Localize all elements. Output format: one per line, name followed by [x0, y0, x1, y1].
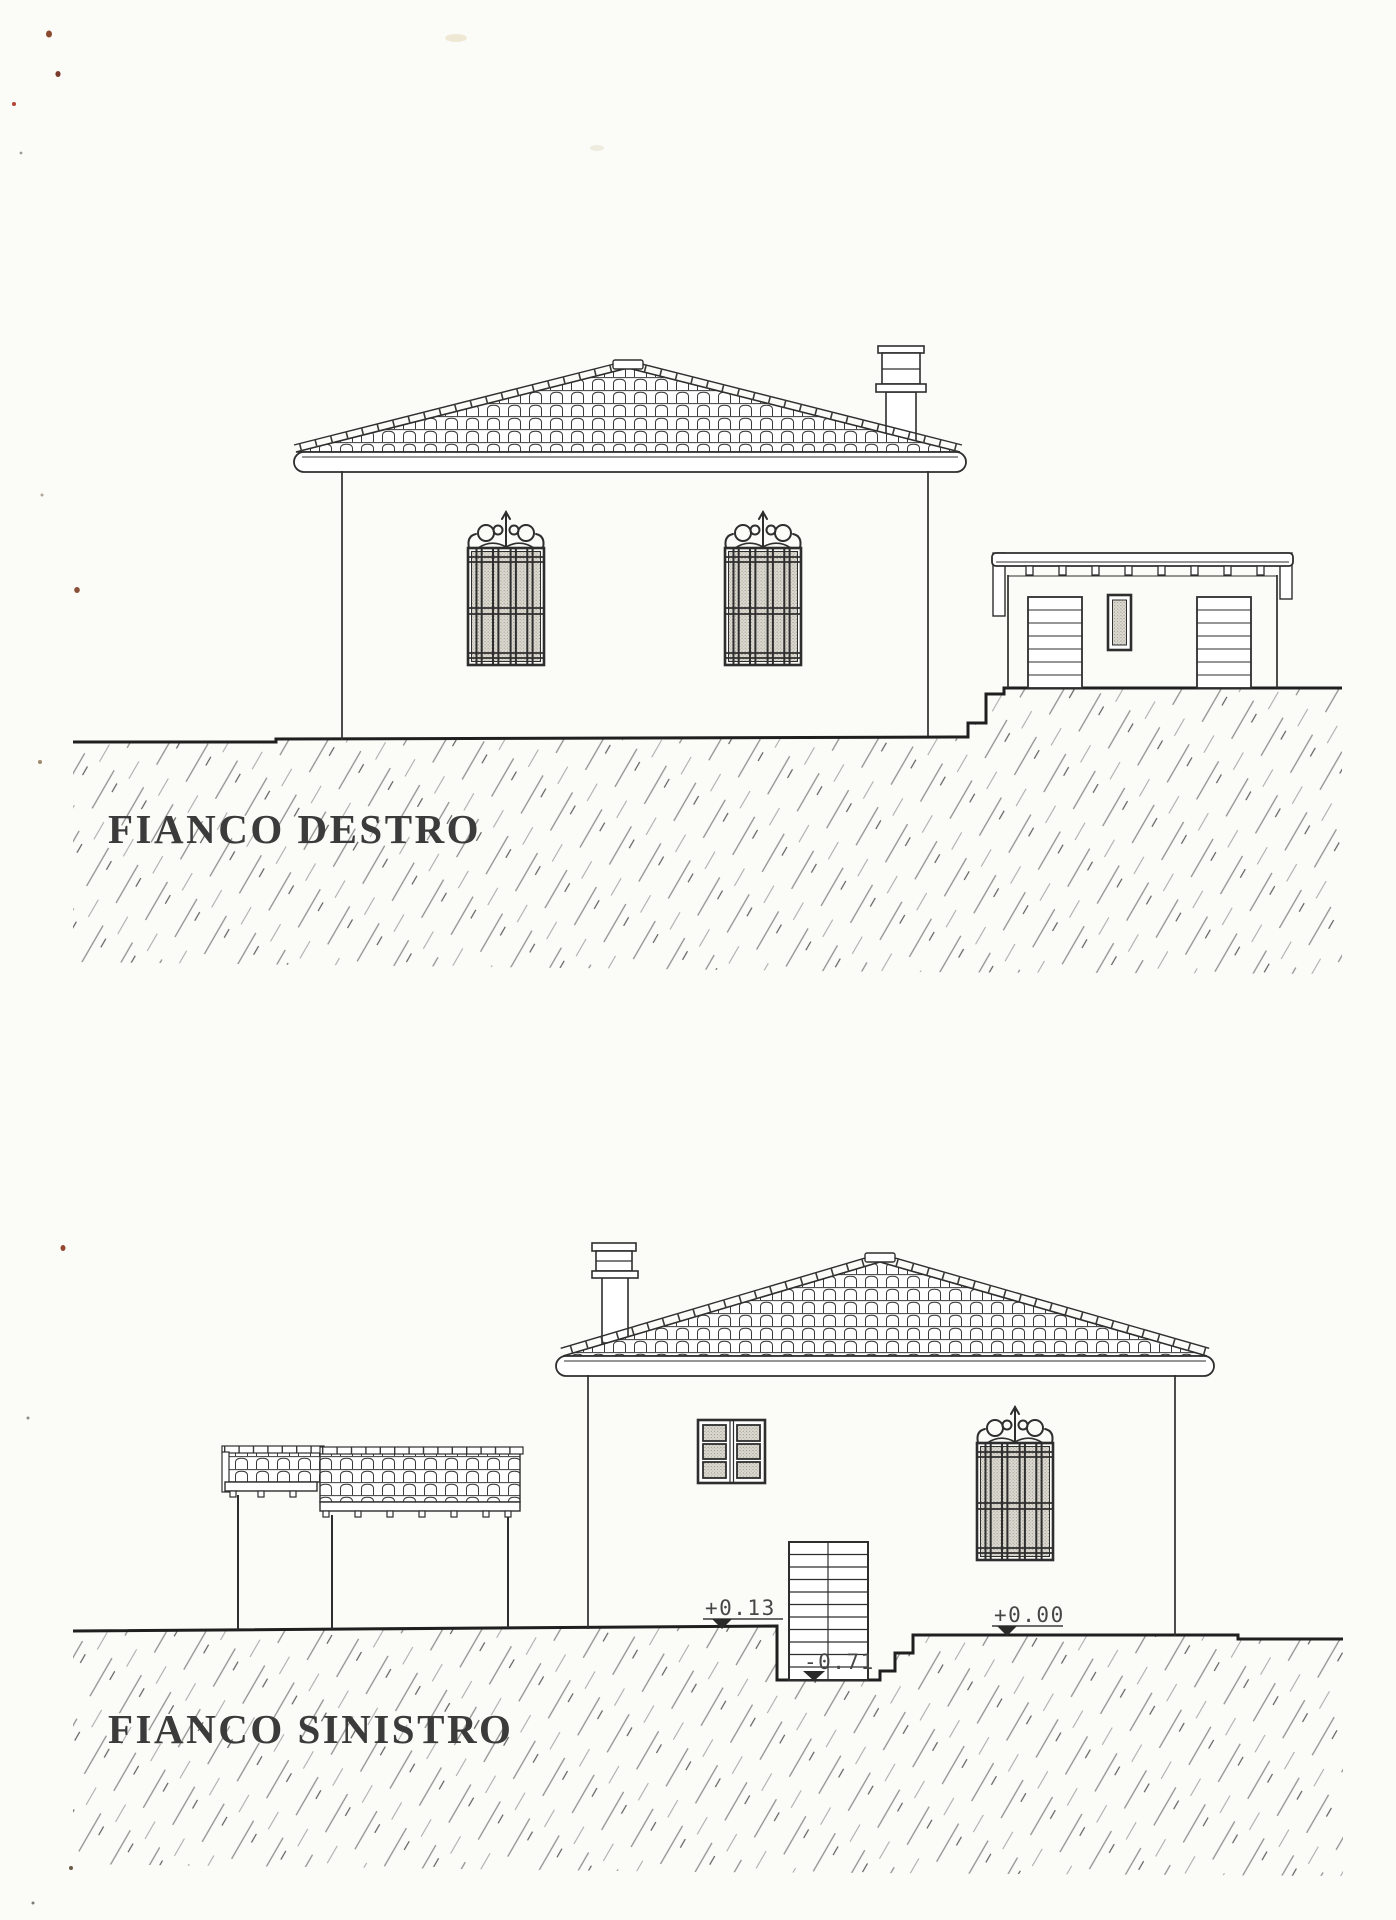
level-marker-plus000: +0.00	[992, 1603, 1065, 1636]
carport-pergola	[222, 1446, 523, 1630]
title-fianco-sinistro: FIANCO SINISTRO	[108, 1706, 513, 1752]
top-elevation-drawing: FIANCO DESTRO	[73, 346, 1342, 974]
level-marker-plus013: +0.13	[703, 1596, 783, 1629]
ridge-apex-cap	[865, 1253, 895, 1262]
carport-brackets-left	[230, 1491, 296, 1497]
carport-brackets-right	[323, 1511, 511, 1517]
garage-roof-slab	[992, 553, 1293, 566]
garage	[992, 553, 1293, 688]
house-roof-top	[294, 360, 966, 472]
elevations-svg: FIANCO DESTRO	[0, 0, 1396, 1920]
garage-window	[1108, 595, 1131, 650]
carport-roof-left	[225, 1452, 322, 1482]
small-window	[698, 1420, 765, 1483]
house-walls-top	[342, 471, 928, 740]
level-value-lower-ground: +0.00	[994, 1603, 1065, 1627]
grille-window-right-top	[725, 512, 801, 665]
scan-specks	[12, 31, 604, 1905]
drawing-sheet: FIANCO DESTRO	[0, 0, 1396, 1920]
garage-door-right	[1197, 597, 1251, 688]
house-roof-bottom	[556, 1253, 1214, 1376]
ridge-apex-cap	[613, 360, 643, 369]
level-value-upper-ground: +0.13	[705, 1596, 776, 1620]
carport-fascia-left	[225, 1482, 317, 1491]
level-value-stair-pit: -0.71	[804, 1650, 875, 1674]
grille-window-left-top	[468, 512, 544, 665]
carport-roof-right	[320, 1453, 520, 1502]
bottom-elevation-drawing: +0.13 +0.00 -0.71 FIANCO SINISTRO	[73, 1243, 1343, 1876]
garage-rafter-brackets	[1026, 566, 1264, 575]
eaves-band-bottom	[556, 1356, 1214, 1376]
eaves-band-top	[294, 452, 966, 472]
carport-fascia-right	[320, 1502, 520, 1511]
garage-door-left	[1028, 597, 1082, 688]
grille-window-bottom	[977, 1407, 1053, 1560]
house-walls-bottom	[588, 1375, 1175, 1636]
title-fianco-destro: FIANCO DESTRO	[108, 806, 481, 852]
